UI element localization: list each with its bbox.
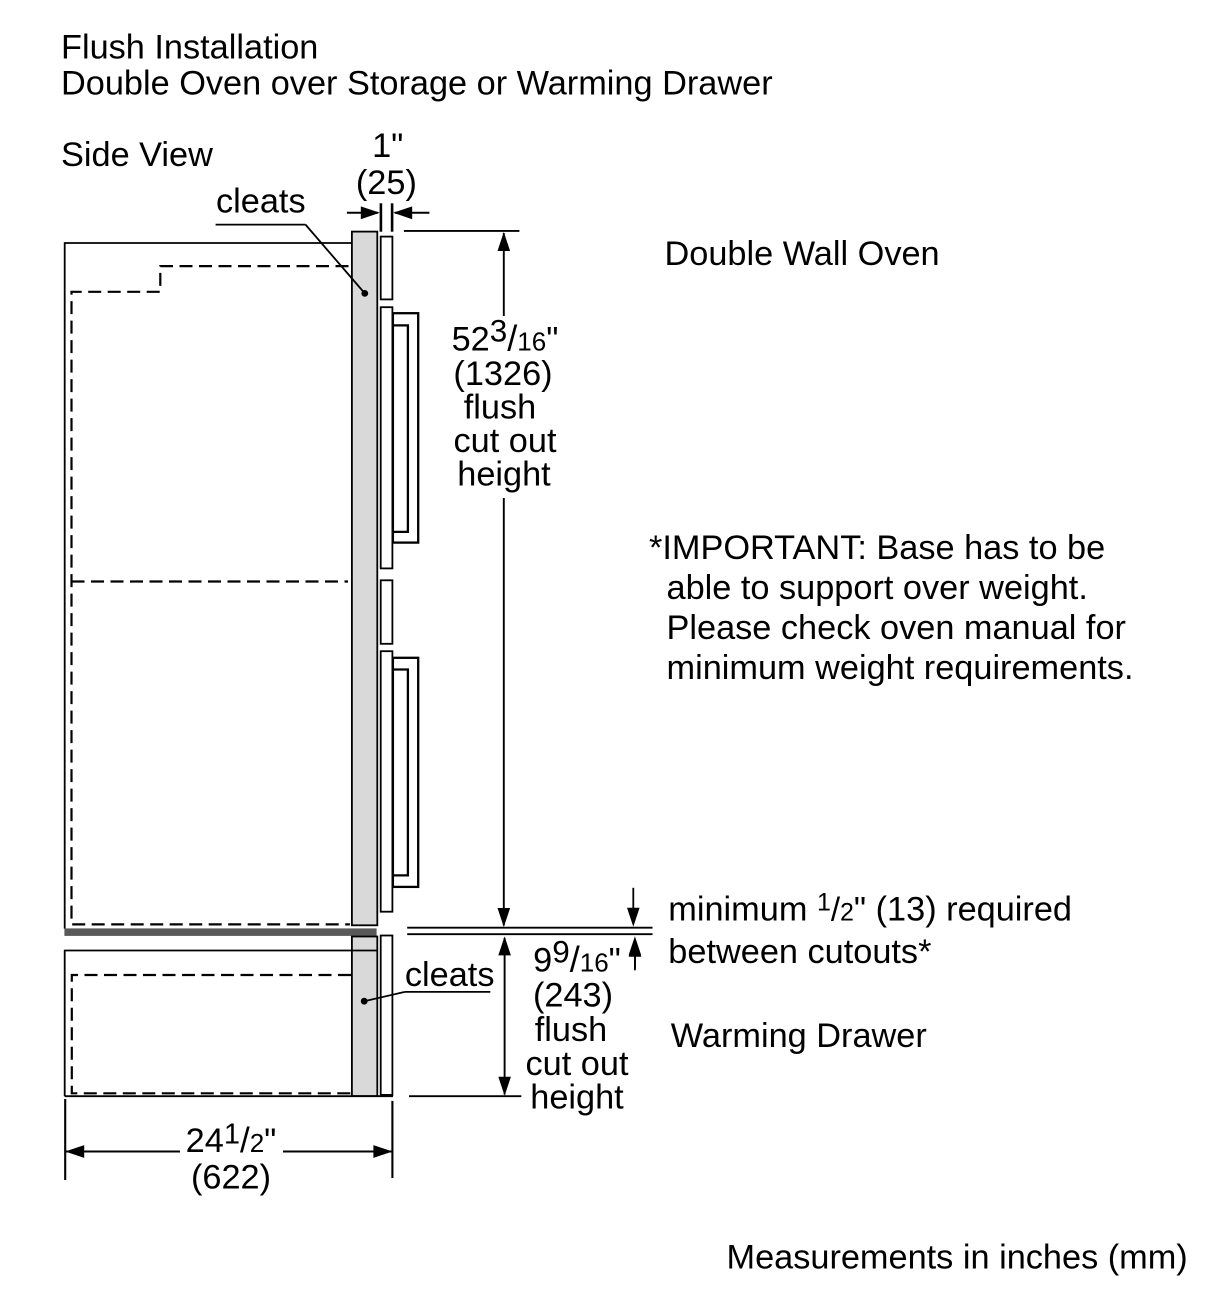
svg-text:cut out: cut out [526, 1045, 629, 1083]
svg-text:Double Wall Oven: Double Wall Oven [665, 235, 940, 273]
svg-text:minimum weight requirements.: minimum weight requirements. [667, 649, 1134, 687]
svg-text:height: height [457, 456, 551, 494]
svg-text:between cutouts*: between cutouts* [668, 933, 931, 971]
svg-text:*IMPORTANT: Base has to be: *IMPORTANT: Base has to be [649, 529, 1105, 567]
svg-text:(1326): (1326) [453, 355, 552, 393]
svg-text:Warming Drawer: Warming Drawer [671, 1017, 927, 1055]
svg-text:able to support over weight.: able to support over weight. [667, 569, 1088, 607]
svg-text:cleats: cleats [405, 956, 495, 994]
svg-text:flush: flush [535, 1011, 607, 1049]
svg-text:(622): (622) [191, 1159, 271, 1197]
svg-text:Flush Installation: Flush Installation [61, 28, 318, 66]
svg-text:Please check oven manual for: Please check oven manual for [667, 609, 1126, 647]
svg-text:(243): (243) [533, 976, 613, 1014]
svg-text:Double Oven over Storage or Wa: Double Oven over Storage or Warming Draw… [61, 65, 773, 103]
svg-text:1": 1" [372, 127, 403, 165]
svg-text:flush: flush [464, 389, 536, 427]
svg-text:minimum 1/2" (13) required: minimum 1/2" (13) required [668, 888, 1072, 928]
svg-text:Side View: Side View [61, 136, 213, 174]
svg-text:cleats: cleats [216, 182, 306, 220]
svg-text:height: height [530, 1079, 624, 1117]
svg-text:Measurements in inches (mm): Measurements in inches (mm) [727, 1239, 1188, 1277]
svg-text:(25): (25) [356, 164, 417, 202]
svg-text:cut out: cut out [454, 422, 557, 460]
